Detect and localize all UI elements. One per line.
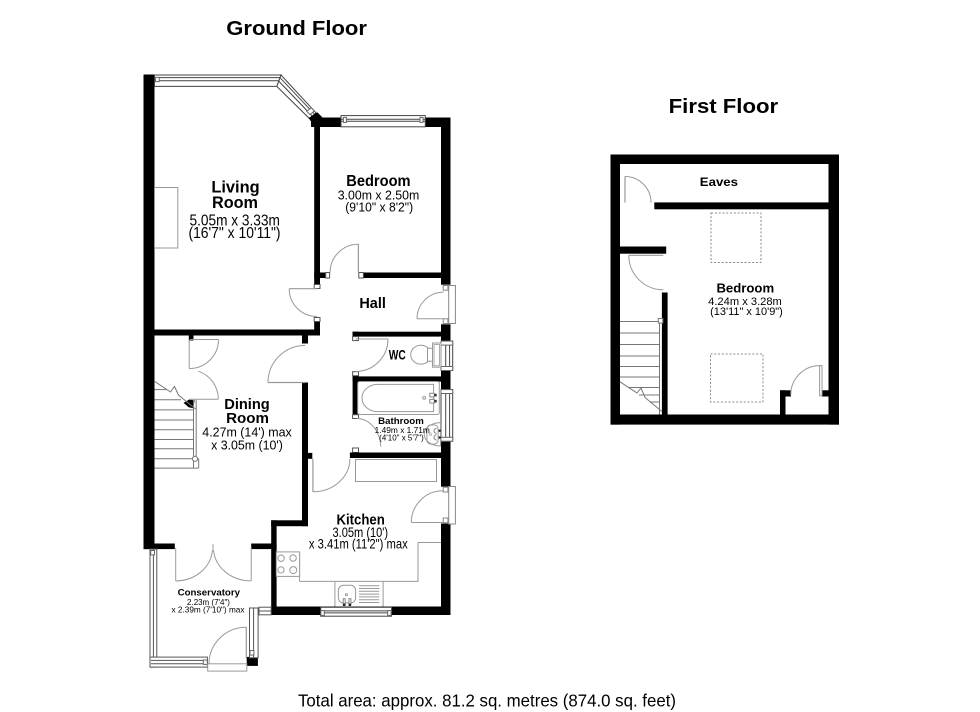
svg-text:Conservatory: Conservatory bbox=[178, 588, 240, 598]
svg-text:First Floor: First Floor bbox=[669, 96, 779, 118]
svg-text:(16'7" x 10'11"): (16'7" x 10'11") bbox=[188, 225, 280, 242]
svg-text:Eaves: Eaves bbox=[700, 175, 739, 189]
svg-text:(9'10" x 8'2"): (9'10" x 8'2") bbox=[345, 199, 413, 214]
svg-text:Room: Room bbox=[212, 193, 258, 212]
svg-text:Ground Floor: Ground Floor bbox=[226, 18, 367, 40]
svg-text:Bedroom: Bedroom bbox=[716, 280, 774, 295]
svg-text:x 2.39m (7'10") max: x 2.39m (7'10") max bbox=[172, 605, 246, 615]
svg-text:Total area: approx. 81.2 sq. m: Total area: approx. 81.2 sq. metres (874… bbox=[298, 690, 676, 710]
svg-text:(4'10" x 5'7"): (4'10" x 5'7") bbox=[379, 434, 424, 443]
svg-text:Bathroom: Bathroom bbox=[378, 416, 424, 426]
svg-text:Hall: Hall bbox=[359, 296, 386, 312]
svg-text:(13'11" x 10'9"): (13'11" x 10'9") bbox=[710, 306, 783, 318]
svg-text:WC: WC bbox=[389, 347, 406, 362]
svg-text:x 3.41m (11'2") max: x 3.41m (11'2") max bbox=[309, 535, 408, 551]
svg-text:x 3.05m (10'): x 3.05m (10') bbox=[211, 438, 283, 453]
